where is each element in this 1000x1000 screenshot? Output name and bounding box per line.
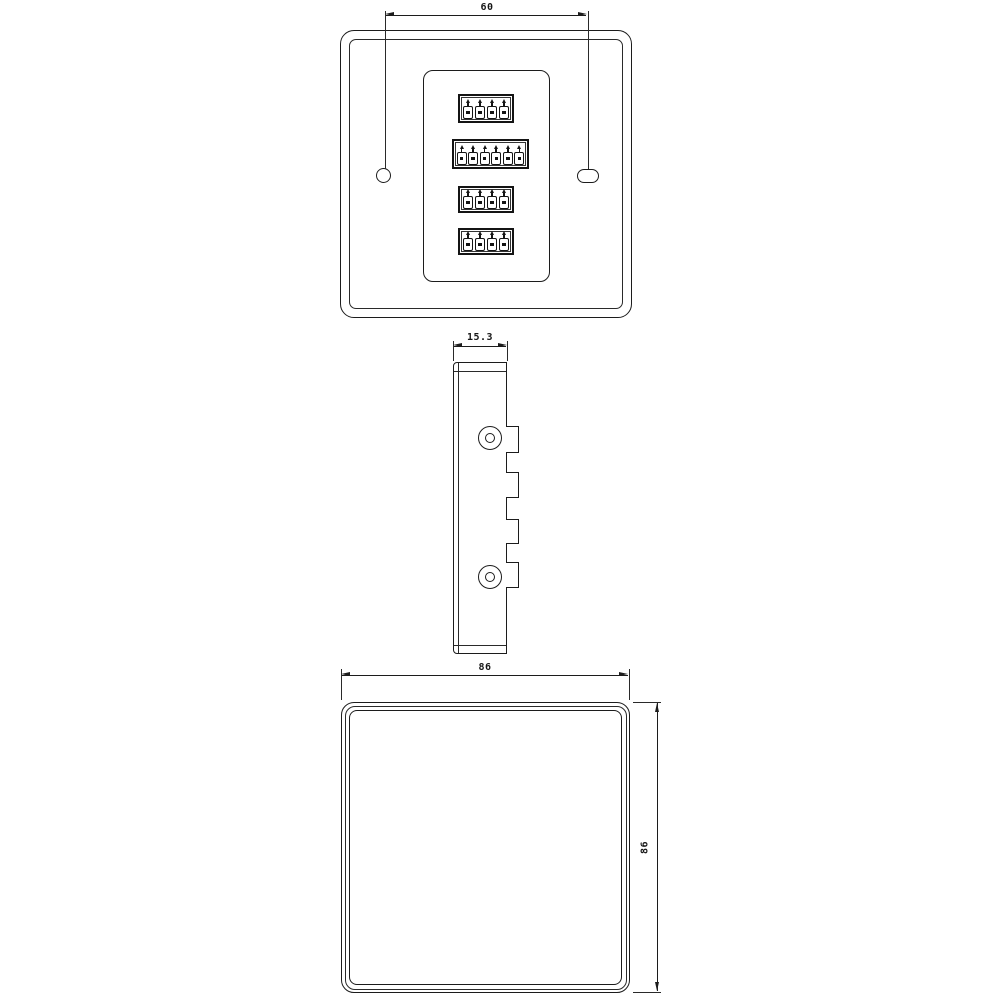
- terminal-contact-dot: [483, 157, 487, 161]
- dim-arrow-left-icon: [453, 343, 462, 347]
- terminal-pin: [457, 145, 467, 165]
- terminal-cell: [491, 152, 501, 165]
- width-dimension: 86: [464, 662, 506, 673]
- depth-dimension: 15.3: [455, 332, 505, 343]
- front-inner-line: [349, 710, 622, 985]
- extension-line: [629, 669, 630, 700]
- terminal-pin: [463, 99, 473, 119]
- terminal-block-4: [458, 228, 514, 255]
- terminal-cell: [487, 106, 497, 119]
- dim-arrow-right-icon: [498, 343, 507, 347]
- terminal-cell: [463, 106, 473, 119]
- terminal-contact-dot: [478, 243, 482, 247]
- terminal-tab-2: [506, 472, 519, 498]
- terminal-pin: [487, 231, 497, 251]
- terminal-contact-dot: [502, 243, 506, 247]
- terminal-contact-dot: [466, 201, 470, 205]
- extension-line: [385, 11, 386, 169]
- terminal-cell: [487, 196, 497, 209]
- top-cap-line: [454, 371, 506, 372]
- screw-bottom-center-icon: [485, 572, 495, 582]
- terminal-block-1: [458, 94, 514, 123]
- terminal-contact-dot: [466, 111, 470, 115]
- terminal-tab-4: [506, 562, 519, 588]
- faceplate-edge-line: [458, 363, 459, 653]
- dim-arrow-left-icon: [385, 12, 394, 16]
- side-body-outline: [453, 362, 507, 654]
- terminal-cell: [475, 196, 485, 209]
- round-mounting-hole: [376, 168, 391, 183]
- screw-top-center-icon: [485, 433, 495, 443]
- dim-arrow-right-icon: [619, 672, 628, 676]
- dimension-line: [342, 675, 628, 676]
- terminal-contact-dot: [478, 201, 482, 205]
- terminal-contact-dot: [478, 111, 482, 115]
- extension-line: [633, 992, 661, 993]
- bottom-cap-line: [454, 645, 506, 646]
- technical-drawing: 60 15.3 86: [0, 0, 1000, 1000]
- terminal-contact-dot: [466, 243, 470, 247]
- extension-line: [588, 11, 589, 169]
- terminal-contact-dot: [490, 111, 494, 115]
- terminal-pin: [499, 231, 509, 251]
- terminal-pin: [487, 189, 497, 209]
- dim-arrow-up-icon: [655, 703, 659, 712]
- terminal-cell: [503, 152, 513, 165]
- slotted-mounting-hole: [577, 169, 599, 183]
- terminal-pin: [463, 231, 473, 251]
- terminal-contact-dot: [506, 157, 510, 161]
- terminal-contact-dot: [490, 243, 494, 247]
- terminal-pin: [475, 99, 485, 119]
- terminal-contact-dot: [502, 111, 506, 115]
- terminal-contact-dot: [471, 157, 475, 161]
- terminal-pin: [499, 189, 509, 209]
- terminal-cell: [514, 152, 524, 165]
- terminal-cell: [463, 196, 473, 209]
- terminal-cell: [499, 196, 509, 209]
- terminal-pin: [463, 189, 473, 209]
- dim-arrow-down-icon: [655, 982, 659, 991]
- terminal-contact-dot: [502, 201, 506, 205]
- dim-arrow-left-icon: [341, 672, 350, 676]
- terminal-contact-dot: [518, 157, 522, 161]
- terminal-cell: [480, 152, 490, 165]
- terminal-cell: [487, 238, 497, 251]
- terminal-contact-dot: [490, 201, 494, 205]
- height-dimension: 86: [640, 833, 651, 863]
- terminal-cell: [457, 152, 467, 165]
- terminal-pin: [475, 231, 485, 251]
- terminal-cell: [499, 238, 509, 251]
- terminal-cell: [468, 152, 478, 165]
- terminal-contact-dot: [460, 157, 464, 161]
- dim-arrow-right-icon: [578, 12, 587, 16]
- terminal-pin: [468, 145, 478, 165]
- terminal-tab-1: [506, 426, 519, 453]
- dimension-line: [386, 15, 586, 16]
- terminal-block-2: [452, 139, 529, 169]
- terminal-pin: [491, 145, 501, 165]
- terminal-pin: [475, 189, 485, 209]
- terminal-pin: [514, 145, 524, 165]
- terminal-pin: [503, 145, 513, 165]
- terminal-cell: [499, 106, 509, 119]
- terminal-pin: [487, 99, 497, 119]
- terminal-cell: [475, 106, 485, 119]
- terminal-pin: [480, 145, 490, 165]
- terminal-block-3: [458, 186, 514, 213]
- dimension-line: [657, 703, 658, 991]
- terminal-pin: [499, 99, 509, 119]
- terminal-cell: [475, 238, 485, 251]
- terminal-tab-3: [506, 519, 519, 544]
- terminal-contact-dot: [495, 157, 499, 161]
- hole-spacing-dimension: 60: [466, 2, 508, 13]
- terminal-cell: [463, 238, 473, 251]
